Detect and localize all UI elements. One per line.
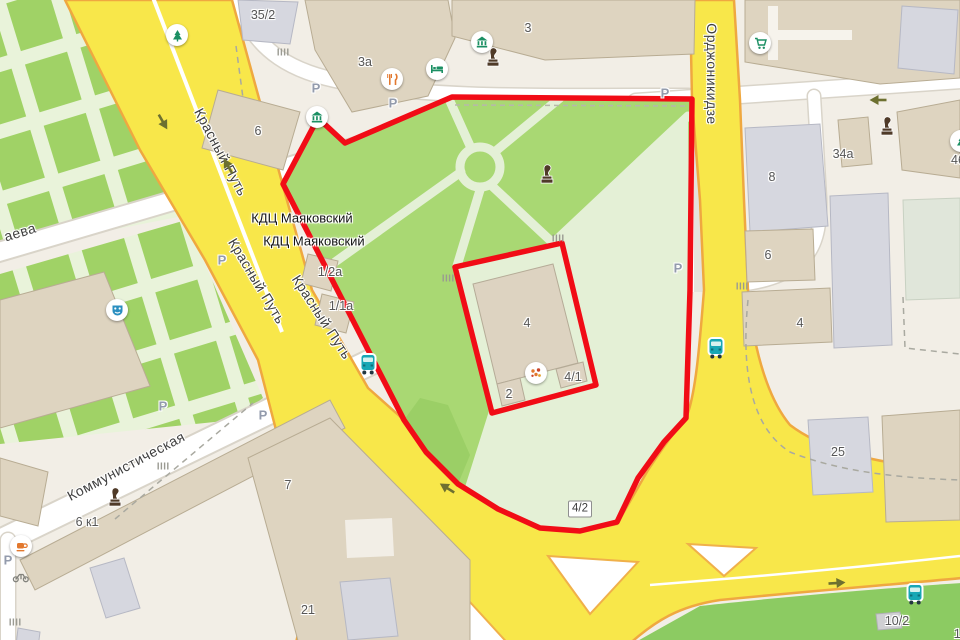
park-icon[interactable]	[166, 24, 188, 46]
entrance-icon	[10, 619, 21, 626]
address-label: 34а	[833, 147, 854, 161]
address-label: 1/2а	[318, 265, 342, 279]
cafe-icon[interactable]	[10, 535, 32, 557]
map-base-layer	[0, 0, 960, 640]
address-label: 21	[301, 603, 315, 617]
poi-label: КДЦ Маяковский	[263, 234, 364, 249]
direction-arrow-icon	[827, 576, 847, 589]
monument-icon[interactable]	[539, 165, 556, 186]
restaurant-icon[interactable]	[381, 68, 403, 90]
bus-icon[interactable]	[706, 337, 727, 360]
entrance-icon	[158, 463, 169, 470]
address-label: 1/1а	[329, 299, 353, 313]
address-label: 3а	[358, 55, 372, 69]
map-canvas[interactable]: Красный ПутьКрасный ПутьКрасный ПутьОрдж…	[0, 0, 960, 640]
address-label: 3	[525, 21, 532, 35]
monument-icon[interactable]	[107, 488, 124, 509]
address-label: 6 к1	[76, 515, 99, 529]
entrance-icon	[553, 235, 564, 242]
direction-arrow-icon	[869, 94, 888, 106]
address-label: 10/2	[954, 627, 960, 640]
parking-icon: P	[389, 96, 398, 111]
bus-icon[interactable]	[358, 353, 379, 376]
parking-icon: P	[259, 408, 268, 423]
address-label: 46	[951, 153, 960, 167]
address-label: 6	[765, 248, 772, 262]
address-label: 4/1	[564, 370, 581, 384]
monument-icon[interactable]	[485, 48, 502, 69]
boxed-address-label: 4/2	[568, 501, 592, 518]
poi-label: КДЦ Маяковский	[251, 211, 352, 226]
scooter-icon[interactable]	[12, 572, 30, 583]
parking-icon: P	[4, 553, 13, 568]
bus-icon[interactable]	[905, 583, 926, 606]
parking-icon: P	[218, 253, 227, 268]
address-label: 35/2	[251, 8, 275, 22]
cart-icon[interactable]	[749, 32, 771, 54]
parking-icon: P	[312, 81, 321, 96]
address-label: 7	[285, 478, 292, 492]
address-label: 10/2	[885, 614, 909, 628]
parking-icon: P	[661, 86, 670, 101]
museum-icon[interactable]	[306, 106, 328, 128]
entrance-icon	[278, 49, 289, 56]
theater-icon[interactable]	[106, 299, 128, 321]
address-label: 8	[769, 170, 776, 184]
address-label: 2	[506, 387, 513, 401]
street-label: Орджоникидзе	[704, 23, 720, 124]
hotel-icon[interactable]	[426, 58, 448, 80]
parking-icon: P	[159, 399, 168, 414]
address-label: 6	[255, 124, 262, 138]
parking-icon: P	[674, 261, 683, 276]
entrance-icon	[737, 283, 748, 290]
address-label: 25	[831, 445, 845, 459]
monument-icon[interactable]	[879, 117, 896, 138]
flowers-icon[interactable]	[525, 362, 547, 384]
entrance-icon	[443, 275, 454, 282]
address-label: 4	[524, 316, 531, 330]
address-label: 4	[797, 316, 804, 330]
